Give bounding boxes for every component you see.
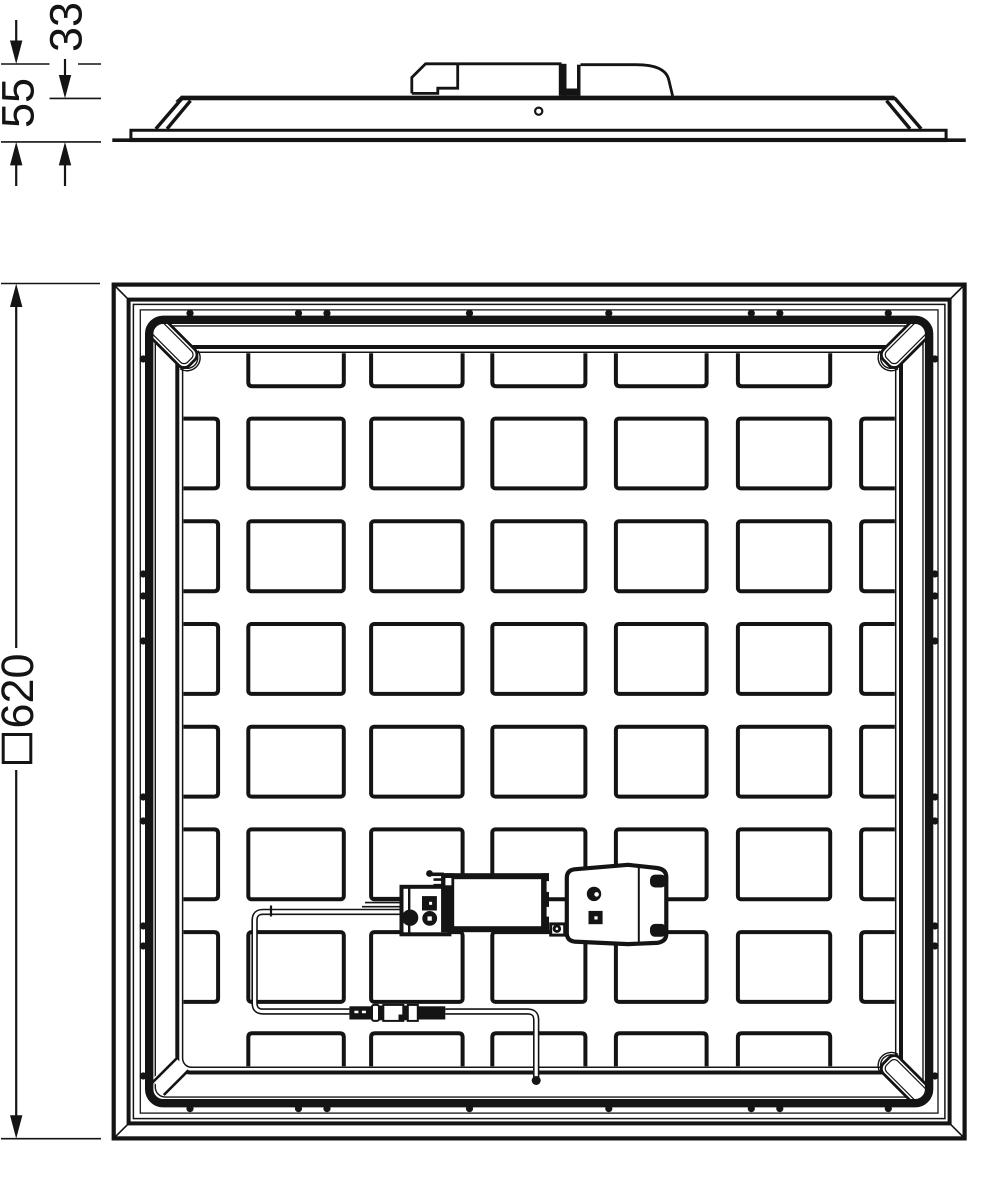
svg-text:620: 620: [0, 653, 43, 728]
svg-text:55: 55: [0, 78, 44, 128]
svg-text:33: 33: [41, 2, 92, 52]
